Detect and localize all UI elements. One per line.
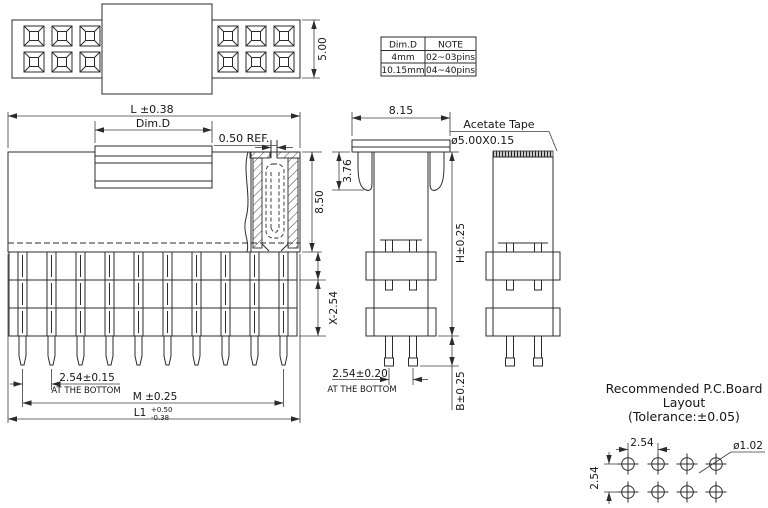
spec-table: Dim.D NOTE 4mm 02~03pins 10.15mm 04~40pi… xyxy=(381,37,476,76)
dim-top-height: 5.00 xyxy=(302,20,329,78)
break-line xyxy=(245,152,248,252)
tape-cover-front xyxy=(95,146,212,188)
spacer-stack xyxy=(9,252,297,336)
dim-l1-label: L1 xyxy=(134,407,147,419)
side-view-middle: 8.15 3.76 H±0.25 B±0.25 2.54±0.2 xyxy=(327,104,467,411)
pcb-title-line3: (Tolerance:±0.05) xyxy=(628,409,740,424)
table-cell-dim-0: 4mm xyxy=(391,53,414,63)
table-cell-dim-1: 10.15mm xyxy=(381,66,424,76)
acetate-tape-strip xyxy=(493,151,553,157)
dim-hole-pitch-y: 2.54 xyxy=(589,452,620,504)
tape-cover-top xyxy=(102,4,212,94)
socket-cross-section xyxy=(245,140,300,252)
dim-height-h-label: H±0.25 xyxy=(455,223,467,263)
dim-pin-pitch-side-note: AT THE BOTTOM xyxy=(327,385,396,395)
dim-flange-height: 3.76 xyxy=(332,152,364,190)
dim-body-height: 8.50 xyxy=(302,152,326,252)
dim-pin-pitch-front-note: AT THE BOTTOM xyxy=(51,386,120,396)
pin-row-front xyxy=(19,336,287,365)
dim-stack-height: X-2.54 xyxy=(299,252,340,336)
dim-slot-ref-label: 0.50 REF. xyxy=(219,132,270,145)
top-view: 5.00 xyxy=(12,4,329,94)
dim-span-m-label: M ±0.25 xyxy=(133,391,178,403)
pcb-layout: Recommended P.C.Board Layout (Tolerance:… xyxy=(589,381,765,504)
dim-hole-pitch-y-label: 2.54 xyxy=(589,466,601,490)
left-flange-wing xyxy=(358,152,372,190)
dim-flange-height-label: 3.76 xyxy=(342,159,354,183)
dim-hole-pitch-x-label: 2.54 xyxy=(630,437,654,449)
dim-pin-pitch-front: 2.54±0.15 AT THE BOTTOM xyxy=(10,369,121,407)
dim-tail-b-label: B±0.25 xyxy=(455,371,467,410)
right-flange-wing xyxy=(430,152,444,190)
table-cell-note-1: 04~40pins xyxy=(426,66,475,76)
dim-l1-tol-plus: +0.50 xyxy=(151,406,172,414)
table-header-dim: Dim.D xyxy=(389,41,417,51)
pcb-title-line2: Layout xyxy=(663,395,706,410)
pcb-title-line1: Recommended P.C.Board xyxy=(606,381,763,396)
table-header-note: NOTE xyxy=(438,41,463,51)
dim-pin-pitch-side: 2.54±0.20 AT THE BOTTOM xyxy=(327,368,428,395)
connector-technical-drawing: 5.00 Dim.D NOTE 4mm 02~03pins 10.15mm 04… xyxy=(0,0,768,508)
dim-slot-ref: 0.50 REF. xyxy=(214,132,293,150)
dim-l1-tol-minus: -0.38 xyxy=(151,414,169,422)
dim-pin-pitch-front-label: 2.54±0.15 xyxy=(59,372,115,384)
tape-callout-label: Acetate Tape xyxy=(463,118,534,131)
top-cap xyxy=(352,140,450,152)
dim-hole-dia: ø1.02 xyxy=(699,440,765,473)
contact-outline xyxy=(266,164,284,238)
dim-overall-width-label: L ±0.38 xyxy=(130,103,173,116)
drill-hole-grid xyxy=(618,454,727,503)
front-view: L ±0.38 Dim.D 0.50 REF. 8.50 xyxy=(8,103,340,423)
dim-tail-b: B±0.25 xyxy=(420,336,467,411)
dim-stack-height-label: X-2.54 xyxy=(328,291,340,325)
table-cell-note-0: 02~03pins xyxy=(426,53,475,63)
dim-cap-width: 8.15 xyxy=(352,104,450,136)
dim-cap-width-label: 8.15 xyxy=(389,104,414,117)
tape-callout-spec: ø5.00X0.15 xyxy=(451,134,514,147)
dim-pin-pitch-side-label: 2.54±0.20 xyxy=(332,368,388,380)
tape-callout: Acetate Tape ø5.00X0.15 xyxy=(450,118,557,151)
dim-hole-pitch-x: 2.54 xyxy=(616,437,670,457)
dim-tape-width: Dim.D xyxy=(95,117,212,143)
dim-top-height-label: 5.00 xyxy=(317,37,329,60)
side-body-right xyxy=(493,157,553,336)
dim-hole-dia-label: ø1.02 xyxy=(733,440,763,452)
dim-body-height-label: 8.50 xyxy=(314,190,326,213)
dim-tape-width-label: Dim.D xyxy=(136,117,170,130)
